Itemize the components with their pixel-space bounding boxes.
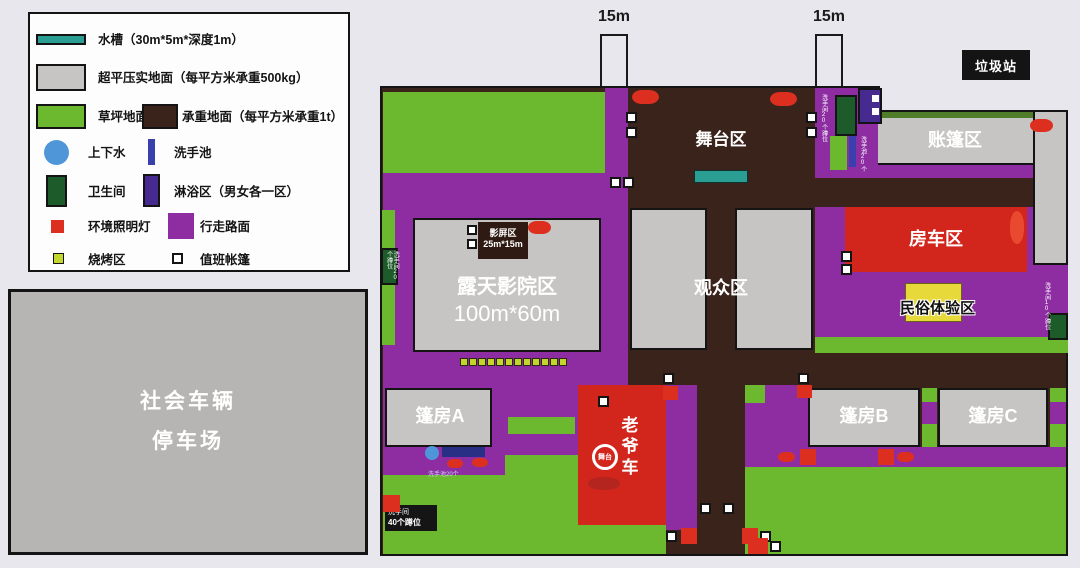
duty-tent-marker <box>663 373 674 384</box>
light-marker <box>897 452 914 462</box>
tent-area-zone-east-wing <box>1033 112 1068 265</box>
car-stage-circle: 舞台 <box>592 444 618 470</box>
walkway-tent-area-south <box>815 165 1033 178</box>
walkway-gate-left-column <box>605 88 628 385</box>
duty-tent-marker <box>666 531 677 542</box>
bbq-stall-marker <box>469 358 477 366</box>
light-marker <box>1010 211 1024 244</box>
bbq-stall-marker <box>505 358 513 366</box>
water-supply-point <box>425 446 439 460</box>
duty-tent-marker <box>770 541 781 552</box>
bbq-stall-marker <box>496 358 504 366</box>
legend-shower-label: 淋浴区（男女各一区） <box>174 186 299 199</box>
water-trough <box>694 170 748 183</box>
duty-tent-marker <box>467 225 477 235</box>
wash-basin-swatch-icon <box>148 139 155 165</box>
toilet-west-label: 洗手间20个蹲位 <box>385 251 398 283</box>
light-marker <box>663 386 678 400</box>
walkway-strip-bc <box>922 402 937 424</box>
legend-bbq-label: 烧烤区 <box>88 254 126 267</box>
audience-zone-label: 观众区 <box>671 278 771 299</box>
duty-tent-marker <box>798 373 809 384</box>
legend-walkway-label: 行走路面 <box>200 221 250 234</box>
garbage-station: 垃圾站 <box>962 50 1030 80</box>
tent-house-c-label: 篷房C <box>943 406 1043 427</box>
duty-tent-marker <box>598 396 609 407</box>
screen-zone: 影屏区 25m*15m <box>478 222 528 259</box>
toilet-top-label: 洗手间20个蹲位 <box>820 94 827 142</box>
parking-label-line2: 停车场 <box>152 422 224 462</box>
legend-compacted-ground-label: 超平压实地面（每平方米承重500kg） <box>98 72 308 85</box>
lawn-strip-east-top <box>1050 388 1066 402</box>
duty-tent-marker <box>626 112 637 123</box>
legend-load-bearing-label: 承重地面（每平方米承重1t） <box>182 111 343 124</box>
bbq-stall-marker <box>523 358 531 366</box>
light-marker <box>797 385 812 398</box>
tent-area-label: 账篷区 <box>905 130 1005 151</box>
duty-tent-swatch-icon <box>172 253 183 264</box>
wash-basin-north <box>849 136 856 167</box>
lawn-southeast <box>745 467 1066 554</box>
toilet-swatch-icon <box>46 175 67 207</box>
legend-duty-tent-label: 值班帐篷 <box>200 254 250 267</box>
toilet-east-label: 洗手间10个蹲位 <box>1043 282 1050 330</box>
lawn-swatch-icon <box>36 104 86 129</box>
duty-tent-marker <box>467 239 477 249</box>
lawn-bar-2 <box>505 455 578 477</box>
site-plan-page: { "colors": { "background": "#e8e7ed", "… <box>0 0 1080 568</box>
toilet-north <box>835 95 857 136</box>
water-trough-swatch-icon <box>36 34 86 45</box>
gate-left-dimension: 15m <box>588 8 640 26</box>
duty-tent-marker <box>841 251 852 262</box>
lawn-strip-bc-bottom <box>922 424 937 447</box>
duty-tent-marker <box>841 264 852 275</box>
light-marker <box>447 459 463 468</box>
walkway-east-of-car <box>666 385 697 530</box>
gate-right-bracket <box>815 34 843 86</box>
walkway-swatch-icon <box>168 213 194 239</box>
duty-tent-marker <box>626 127 637 138</box>
legend-toilet-label: 卫生间 <box>88 186 126 199</box>
toilet-west: 洗手间20个蹲位 <box>381 248 398 285</box>
duty-tent-marker <box>806 127 817 138</box>
tent-house-a-label: 篷房A <box>390 406 490 427</box>
vintage-car-label: 老爷车 <box>618 416 638 479</box>
duty-tent-marker <box>723 503 734 514</box>
legend-light-label: 环境照明灯 <box>88 221 151 234</box>
duty-tent-marker <box>610 177 621 188</box>
stage-zone-label: 舞台区 <box>671 130 771 150</box>
cinema-label: 露天影院区 <box>432 276 582 299</box>
bbq-stall-marker <box>487 358 495 366</box>
screen-zone-size: 25m*15m <box>478 239 528 249</box>
bbq-zone-row <box>460 353 580 363</box>
lawn-bar-1 <box>508 417 575 434</box>
cinema-size-label: 100m*60m <box>432 301 582 326</box>
light-marker <box>878 449 894 465</box>
light-marker <box>632 90 659 104</box>
wash-basin-south <box>442 447 485 457</box>
lawn-under-vintage-car <box>578 525 666 554</box>
shower-north <box>858 88 882 124</box>
car-stage-oval <box>588 477 620 490</box>
toilet-south-label-line2: 40个蹲位 <box>388 517 434 528</box>
duty-tent-marker <box>872 95 879 102</box>
light-marker <box>800 449 816 465</box>
lawn-notch-tent-b <box>745 385 765 403</box>
legend-water-trough-label: 水槽（30m*5m*深度1m） <box>98 34 244 47</box>
lawn-mid-east-strip <box>815 337 1068 353</box>
site-map: 洗手间20个蹲位 影屏区 25m*15m 露天影院区 100m*60m 舞台区 … <box>380 86 1068 556</box>
light-marker <box>748 538 768 554</box>
legend-water-supply-label: 上下水 <box>88 147 126 160</box>
shower-swatch-icon <box>143 174 160 207</box>
parking-label-line1: 社会车辆 <box>140 382 236 422</box>
screen-zone-label: 影屏区 <box>478 226 528 239</box>
bbq-stall-marker <box>478 358 486 366</box>
light-marker <box>681 528 697 544</box>
duty-tent-marker <box>872 108 879 115</box>
gate-left-bracket <box>600 34 628 86</box>
lawn-strip-bc-top <box>922 388 937 402</box>
lawn-facility-patch <box>830 136 847 170</box>
legend-wash-basin-label: 洗手池 <box>174 147 212 160</box>
car-stage-circle-label: 舞台 <box>598 452 612 462</box>
rv-zone-label: 房车区 <box>886 229 986 250</box>
light-marker <box>528 221 551 234</box>
bbq-swatch-icon <box>53 253 64 264</box>
compacted-ground-swatch-icon <box>36 64 86 91</box>
light-marker <box>778 452 795 462</box>
water-supply-swatch-icon <box>44 140 69 165</box>
bbq-stall-marker <box>559 358 567 366</box>
bbq-stall-marker <box>532 358 540 366</box>
gate-right-dimension: 15m <box>803 8 855 26</box>
parking-lot: 社会车辆 停车场 <box>8 289 368 555</box>
load-bearing-swatch-icon <box>142 104 178 129</box>
bbq-stall-marker <box>541 358 549 366</box>
basin-south-label: 洗手池20个 <box>428 469 459 478</box>
toilet-east <box>1048 313 1068 340</box>
light-marker <box>1030 119 1053 132</box>
legend-panel: 水槽（30m*5m*深度1m） 超平压实地面（每平方米承重500kg） 草坪地面… <box>28 12 350 272</box>
duty-tent-marker <box>806 112 817 123</box>
light-marker <box>770 92 797 106</box>
light-swatch-icon <box>51 220 64 233</box>
bbq-stall-marker <box>550 358 558 366</box>
walkway-strip-east <box>1050 402 1066 424</box>
tent-house-b-label: 篷房B <box>814 406 914 427</box>
duty-tent-marker <box>700 503 711 514</box>
light-marker <box>383 495 400 512</box>
light-marker <box>472 458 488 467</box>
basin-north-label: 洗手池20个 <box>859 136 866 172</box>
folk-experience-label: 民俗体验区 <box>885 300 990 317</box>
duty-tent-marker <box>623 177 634 188</box>
bbq-stall-marker <box>514 358 522 366</box>
legend-lawn-label: 草坪地面 <box>98 111 148 124</box>
lawn-top-left <box>383 92 605 173</box>
bbq-stall-marker <box>460 358 468 366</box>
lawn-strip-east-bottom <box>1050 424 1066 447</box>
